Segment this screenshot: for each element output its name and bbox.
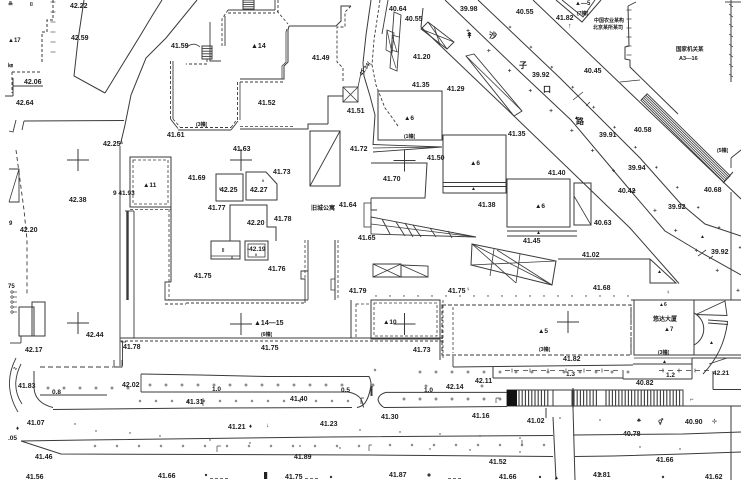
svg-text:1.2: 1.2 [666, 372, 675, 379]
svg-text:▲6: ▲6 [404, 115, 414, 122]
svg-text:41.82: 41.82 [556, 15, 574, 22]
svg-text:75: 75 [8, 284, 15, 290]
svg-text:39.92: 39.92 [668, 204, 686, 211]
svg-text:40.42: 40.42 [618, 188, 636, 195]
svg-text:41.75: 41.75 [285, 474, 303, 480]
svg-text:▲: ▲ [709, 340, 714, 346]
svg-text:41.02: 41.02 [527, 418, 545, 425]
svg-text:42.11: 42.11 [475, 378, 492, 385]
svg-text:41.70: 41.70 [383, 176, 401, 183]
svg-text:42.17: 42.17 [25, 347, 43, 354]
svg-text:39.92: 39.92 [711, 249, 729, 256]
svg-text:≞: ≞ [8, 1, 13, 8]
svg-text:▲6: ▲6 [535, 203, 545, 210]
svg-text:沙: 沙 [489, 31, 497, 40]
svg-text:42.22: 42.22 [70, 3, 88, 10]
svg-text:♀: ♀ [466, 287, 471, 293]
svg-text:42.20: 42.20 [20, 227, 38, 234]
svg-text:41.76: 41.76 [268, 266, 286, 273]
svg-text:42.25: 42.25 [103, 141, 121, 148]
svg-text:▲: ▲ [574, 115, 579, 121]
svg-text:9 41.93: 9 41.93 [113, 190, 135, 197]
svg-text:‖: ‖ [262, 178, 264, 183]
svg-text:41.59: 41.59 [171, 43, 189, 50]
svg-text:42.21: 42.21 [713, 370, 730, 377]
svg-text:♦: ♦ [249, 424, 252, 430]
svg-text:▲—5: ▲—5 [575, 1, 591, 7]
svg-text:42.06: 42.06 [24, 79, 42, 86]
svg-text:42.38: 42.38 [69, 197, 87, 204]
svg-text:40.55: 40.55 [405, 16, 423, 23]
svg-text:40.63: 40.63 [594, 220, 612, 227]
svg-text:42.25: 42.25 [220, 187, 238, 194]
svg-text:旧城公寓: 旧城公寓 [311, 204, 335, 212]
svg-text:41.29: 41.29 [447, 86, 465, 93]
svg-text:40.58: 40.58 [634, 127, 652, 134]
svg-text:41.77: 41.77 [208, 205, 226, 212]
svg-text:▲5: ▲5 [538, 328, 548, 335]
svg-text:↓: ↓ [266, 423, 269, 429]
svg-text:41.61: 41.61 [167, 132, 185, 139]
svg-text:41.73: 41.73 [273, 169, 291, 176]
svg-text:41.31: 41.31 [186, 399, 204, 406]
svg-text:41.66: 41.66 [499, 474, 517, 480]
svg-text:41.64: 41.64 [339, 202, 357, 209]
svg-text:41.56: 41.56 [26, 474, 44, 480]
svg-text:41.68: 41.68 [593, 285, 611, 292]
svg-text:悠达大厦: 悠达大厦 [652, 315, 678, 323]
svg-text:▲14—15: ▲14—15 [254, 320, 284, 327]
svg-text:41.78: 41.78 [274, 216, 292, 223]
svg-text:40.55: 40.55 [516, 9, 534, 16]
svg-text:⌷: ⌷ [30, 2, 33, 8]
svg-text:∿: ∿ [13, 366, 17, 372]
svg-text:‖: ‖ [219, 186, 221, 191]
svg-text:▲: ▲ [536, 230, 541, 236]
svg-text:41.52: 41.52 [258, 100, 276, 107]
svg-text:1.3: 1.3 [566, 371, 575, 378]
svg-text:▲: ▲ [471, 186, 476, 192]
svg-text:41.73: 41.73 [413, 347, 431, 354]
svg-text:♣: ♣ [637, 418, 641, 424]
svg-text:41.07: 41.07 [27, 420, 45, 427]
svg-text:41.81: 41.81 [593, 472, 611, 479]
svg-text:42.59: 42.59 [71, 35, 89, 42]
svg-text:-42.19: -42.19 [247, 246, 266, 253]
svg-text:国家机关某: 国家机关某 [676, 45, 704, 53]
svg-text:41.51: 41.51 [347, 108, 365, 115]
svg-text:.05: .05 [8, 435, 17, 442]
svg-text:41.62: 41.62 [705, 474, 723, 480]
svg-text:42.20: 42.20 [247, 220, 265, 227]
svg-text:41.89: 41.89 [294, 454, 312, 461]
svg-text:41.65: 41.65 [358, 235, 376, 242]
svg-text:41.75: 41.75 [261, 345, 279, 352]
svg-text:40.45: 40.45 [584, 68, 602, 75]
svg-text:39.91: 39.91 [599, 132, 617, 139]
svg-text:▲: ▲ [657, 269, 662, 275]
svg-text:41.35: 41.35 [412, 82, 430, 89]
svg-text:A3—16: A3—16 [679, 56, 698, 62]
svg-text:⚥: ⚥ [658, 418, 664, 426]
svg-text:▲10: ▲10 [383, 319, 397, 326]
svg-text:↑: ↑ [568, 23, 572, 30]
svg-text:41.50: 41.50 [427, 155, 445, 162]
svg-text:▲6: ▲6 [659, 302, 667, 308]
svg-text:中国农业某构: 中国农业某构 [594, 17, 624, 24]
svg-text:41.72: 41.72 [350, 146, 368, 153]
svg-text:40.82: 40.82 [636, 380, 654, 387]
svg-text:(1幢(: (1幢( [404, 133, 415, 140]
svg-text:39.94: 39.94 [628, 165, 646, 172]
svg-text:41.78: 41.78 [123, 344, 141, 351]
svg-text:(7幢(: (7幢( [577, 10, 588, 17]
svg-text:41.63: 41.63 [233, 146, 251, 153]
svg-text:0.5: 0.5 [341, 387, 350, 394]
svg-text:41.52: 41.52 [489, 459, 507, 466]
svg-text:39.98: 39.98 [460, 6, 478, 13]
svg-text:▲7: ▲7 [664, 327, 674, 333]
svg-text:1.0: 1.0 [424, 387, 433, 394]
svg-text:42.27: 42.27 [250, 187, 268, 194]
svg-text:41.23: 41.23 [320, 421, 338, 428]
svg-text:41.82: 41.82 [563, 356, 581, 363]
svg-text:▲17: ▲17 [8, 38, 21, 44]
svg-text:41.46: 41.46 [35, 454, 53, 461]
svg-text:42.14: 42.14 [446, 384, 464, 391]
svg-text:41.49: 41.49 [312, 55, 330, 62]
svg-text:▲11: ▲11 [143, 182, 157, 189]
svg-text:41.38: 41.38 [478, 202, 496, 209]
svg-text:子: 子 [519, 61, 527, 70]
svg-text:⊹: ⊹ [712, 418, 717, 425]
svg-text:42.02: 42.02 [122, 382, 140, 389]
svg-text:41.40: 41.40 [290, 396, 308, 403]
svg-text:1.0: 1.0 [212, 386, 221, 393]
svg-text:♀: ♀ [666, 290, 671, 296]
svg-text:0.8: 0.8 [52, 389, 61, 396]
svg-text:41.02: 41.02 [582, 252, 600, 259]
svg-text:41.83: 41.83 [18, 383, 36, 390]
svg-text:41.45: 41.45 [523, 238, 541, 245]
svg-text:⌐: ⌐ [690, 397, 694, 403]
svg-text:♦: ♦ [16, 426, 19, 432]
svg-text:41.87: 41.87 [389, 472, 407, 479]
svg-text:42.64: 42.64 [16, 100, 34, 107]
svg-text:40.90: 40.90 [685, 419, 703, 426]
svg-text:40.64: 40.64 [389, 6, 407, 13]
svg-text:41.21: 41.21 [228, 424, 246, 431]
svg-text:40.68: 40.68 [704, 187, 722, 194]
svg-text:(6幢(: (6幢( [261, 331, 272, 338]
svg-text:41.40: 41.40 [548, 170, 566, 177]
svg-text:↟: ↟ [466, 31, 473, 40]
svg-text:▲6: ▲6 [470, 160, 480, 167]
svg-text:(5幢(: (5幢( [717, 147, 728, 154]
svg-text:41.66: 41.66 [656, 457, 674, 464]
svg-text:42.44: 42.44 [86, 332, 104, 339]
svg-text:41.35: 41.35 [508, 131, 526, 138]
svg-text:41.69: 41.69 [188, 175, 206, 182]
svg-text:41.20: 41.20 [413, 54, 431, 61]
svg-text:‖: ‖ [231, 255, 233, 260]
svg-text:㎞: ㎞ [8, 63, 13, 69]
svg-text:39.92: 39.92 [532, 72, 550, 79]
svg-text:41.66: 41.66 [158, 473, 176, 480]
svg-text:▲: ▲ [700, 234, 705, 240]
svg-text:41.75: 41.75 [194, 273, 212, 280]
svg-text:41.75: 41.75 [448, 288, 466, 295]
svg-text:▲: ▲ [554, 475, 559, 480]
svg-text:(3幢(: (3幢( [196, 121, 207, 128]
svg-text:▲14: ▲14 [251, 43, 266, 50]
svg-text:口: 口 [543, 85, 551, 94]
svg-text:41.79: 41.79 [349, 288, 367, 295]
svg-text:41.30: 41.30 [381, 414, 399, 421]
svg-text:(3幢(: (3幢( [539, 346, 550, 353]
svg-text:北京某所某司: 北京某所某司 [593, 24, 623, 31]
svg-text:41.16: 41.16 [472, 413, 490, 420]
